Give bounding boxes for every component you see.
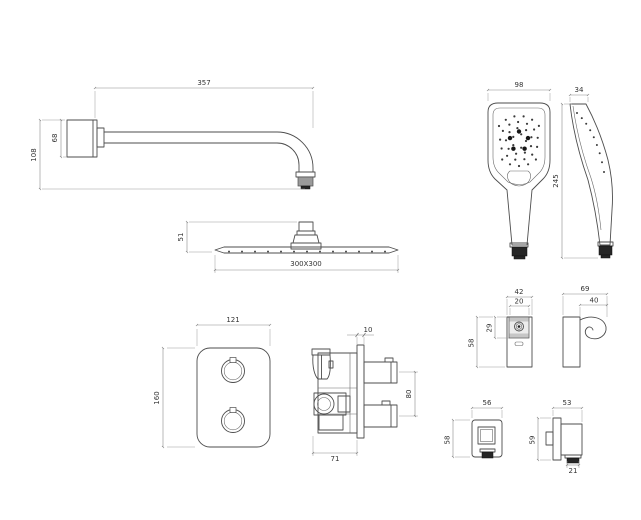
valve-wall-plate <box>357 345 364 438</box>
dim-hand-width: 98 <box>515 81 524 89</box>
spray-dots <box>498 115 540 167</box>
dim-bracket-inner-width: 20 <box>515 298 524 306</box>
dim-outlet-side-height: 59 <box>529 436 537 445</box>
rain-head-view: 51 300X300 <box>177 222 398 273</box>
dim-bracket-depth: 69 <box>581 285 590 293</box>
dim-plate-width: 121 <box>226 316 239 324</box>
knob-bottom <box>222 408 245 433</box>
shower-arm-view: 357 68 108 <box>30 79 315 189</box>
dim-valve-depth: 71 <box>331 455 340 463</box>
drawing-svg: 357 68 108 51 300X300 <box>0 0 641 520</box>
dim-bracket-hook: 40 <box>590 297 599 305</box>
dim-head-size: 300X300 <box>290 260 322 268</box>
valve-cartridge <box>314 393 350 430</box>
dim-outlet-height: 58 <box>444 436 452 445</box>
dim-bracket-height: 58 <box>468 339 476 348</box>
valve-port-top <box>364 358 397 383</box>
holder-side-view: 69 40 <box>563 285 607 367</box>
dim-bracket-width: 42 <box>515 288 524 296</box>
valve-body-view: 10 80 71 <box>312 326 418 463</box>
rain-head-connector <box>291 222 321 249</box>
dim-valve-ports: 80 <box>405 390 413 399</box>
arm-nut <box>296 172 315 189</box>
dim-outlet-width: 56 <box>483 399 492 407</box>
arm-flange <box>67 120 104 157</box>
hand-shower-front-view: 98 <box>488 81 550 259</box>
dim-outlet-spout: 21 <box>569 467 578 475</box>
dim-hand-height: 245 <box>552 174 560 187</box>
hand-shower-side-view: 34 245 <box>552 86 613 258</box>
holder-front-view: 42 20 29 58 <box>468 288 533 367</box>
dim-outlet-depth: 53 <box>563 399 572 407</box>
dim-arm-flange: 68 <box>51 134 59 143</box>
valve-port-bottom <box>364 401 397 427</box>
mode-button <box>507 171 530 186</box>
hand-shower-outline <box>488 103 550 245</box>
arm-tube <box>104 132 313 172</box>
dim-arm-length: 357 <box>197 79 210 87</box>
dim-head-thickness: 51 <box>177 233 185 242</box>
dim-bracket-inner-height: 29 <box>486 324 494 333</box>
trim-plate-view: 121 160 <box>153 316 270 447</box>
outlet-side-view: 53 59 21 <box>529 399 583 475</box>
holder-hook <box>580 317 606 339</box>
rain-head-plate <box>215 247 398 253</box>
outlet-front-view: 56 58 <box>444 399 503 458</box>
knob-top <box>222 358 245 383</box>
dim-valve-plate: 10 <box>364 326 373 334</box>
valve-diverter <box>312 349 333 379</box>
dim-hand-depth: 34 <box>575 86 584 94</box>
shower-set-technical-drawing: 357 68 108 51 300X300 <box>0 0 641 520</box>
dim-plate-height: 160 <box>153 391 161 404</box>
dim-arm-height: 108 <box>30 148 38 161</box>
